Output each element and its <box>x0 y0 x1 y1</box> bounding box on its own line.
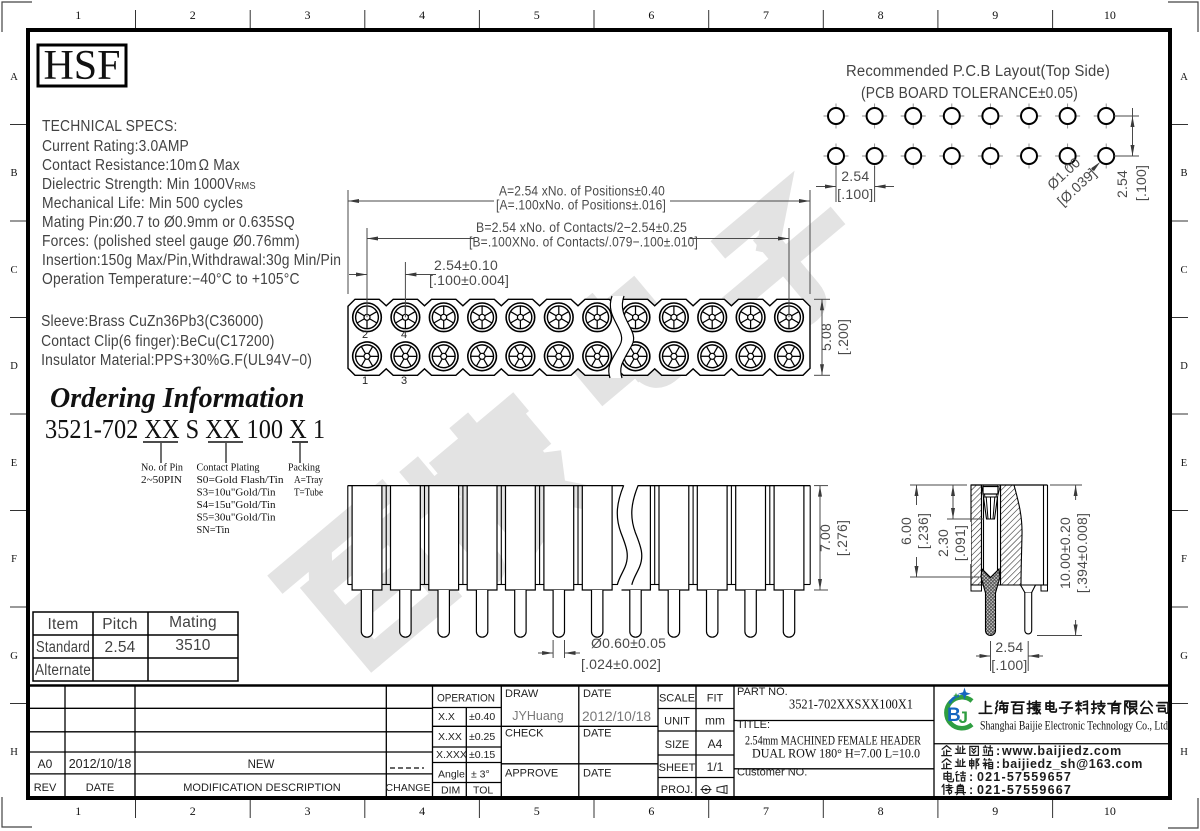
svg-text:[.100]: [.100] <box>991 657 1027 673</box>
svg-text:3521-702 XX S XX 100 X 1: 3521-702 XX S XX 100 X 1 <box>45 414 325 444</box>
svg-text:F: F <box>11 554 17 565</box>
svg-text:1: 1 <box>362 375 368 387</box>
svg-text:[.394±0.008]: [.394±0.008] <box>1074 513 1090 593</box>
svg-text::: : <box>996 744 1000 758</box>
svg-text:Insertion:150g Max/Pin,Withdra: Insertion:150g Max/Pin,Withdrawal:30g Mi… <box>42 252 341 269</box>
svg-text:Sleeve:Brass CuZn36Pb3(C36000): Sleeve:Brass CuZn36Pb3(C36000) <box>41 313 264 330</box>
svg-text:SIZE: SIZE <box>665 739 689 751</box>
svg-text:10.00±0.20: 10.00±0.20 <box>1057 517 1073 589</box>
svg-text:Contact Clip(6 finger):BeCu(C1: Contact Clip(6 finger):BeCu(C17200) <box>41 333 274 350</box>
svg-text:2.30: 2.30 <box>935 529 951 557</box>
svg-text:MODIFICATION DESCRIPTION: MODIFICATION DESCRIPTION <box>183 782 341 794</box>
svg-text:E: E <box>1181 458 1187 469</box>
svg-text:PART NO.: PART NO. <box>737 686 788 698</box>
svg-text:J: J <box>959 708 968 727</box>
svg-text:(PCB BOARD TOLERANCE±0.05): (PCB BOARD TOLERANCE±0.05) <box>861 85 1078 102</box>
svg-text:Mating Pin:Ø0.7 to Ø0.9mm or 0: Mating Pin:Ø0.7 to Ø0.9mm or 0.635SQ <box>42 214 295 231</box>
svg-text:SN=Tin: SN=Tin <box>197 524 230 536</box>
svg-text:Mating: Mating <box>169 614 217 631</box>
svg-text:APPROVE: APPROVE <box>505 768 558 780</box>
svg-text:3510: 3510 <box>175 637 210 654</box>
svg-text:5: 5 <box>534 804 540 818</box>
svg-text:D: D <box>1180 361 1188 372</box>
svg-text:5: 5 <box>534 8 540 22</box>
svg-text:Contact Resistance:10mΩ Max: Contact Resistance:10mΩ Max <box>42 157 240 174</box>
svg-text:1: 1 <box>75 804 81 818</box>
svg-text:7: 7 <box>763 8 769 22</box>
svg-text:±0.15: ±0.15 <box>469 749 495 761</box>
svg-text:SHEET: SHEET <box>659 762 696 774</box>
svg-text:2.54: 2.54 <box>841 168 869 184</box>
svg-text:[.024±0.002]: [.024±0.002] <box>581 656 661 672</box>
svg-text:[B=.100XNo. of Contacts/.079−.: [B=.100XNo. of Contacts/.079−.100±.010] <box>469 234 698 250</box>
svg-text:HSF: HSF <box>43 43 120 89</box>
svg-text:2: 2 <box>190 804 196 818</box>
svg-text:F: F <box>1181 554 1187 565</box>
svg-text:Ø0.60±0.05: Ø0.60±0.05 <box>591 635 666 651</box>
svg-text:Contact Plating: Contact Plating <box>197 462 260 474</box>
svg-text:Operation Temperature:−40°C to: Operation Temperature:−40°C to +105°C <box>42 271 300 288</box>
svg-text:DRAW: DRAW <box>505 688 539 700</box>
svg-text:2: 2 <box>190 8 196 22</box>
svg-text:REV: REV <box>34 782 57 794</box>
svg-text:Forces: (polished steel gauge: Forces: (polished steel gauge Ø0.76mm) <box>42 233 300 250</box>
svg-text:8: 8 <box>878 8 884 22</box>
svg-text:A4: A4 <box>708 737 723 751</box>
svg-text:mm: mm <box>705 714 725 728</box>
svg-text:SCALE: SCALE <box>659 693 695 705</box>
svg-text:6.00: 6.00 <box>898 517 914 545</box>
svg-text:[A=.100xNo. of Positions±.016]: [A=.100xNo. of Positions±.016] <box>496 197 666 213</box>
svg-text:3: 3 <box>305 8 311 22</box>
svg-text:X.XX: X.XX <box>438 731 462 743</box>
svg-text:Pitch: Pitch <box>102 616 137 633</box>
svg-text:2: 2 <box>362 329 368 341</box>
svg-text:OPERATION: OPERATION <box>437 693 495 705</box>
svg-text:5.08: 5.08 <box>818 323 834 351</box>
svg-text:3: 3 <box>305 804 311 818</box>
svg-text:Current Rating:3.0AMP: Current Rating:3.0AMP <box>42 138 189 155</box>
svg-text:[.236]: [.236] <box>915 513 931 549</box>
svg-text:Alternate: Alternate <box>35 662 91 679</box>
svg-text:NEW: NEW <box>248 759 275 771</box>
svg-text:No. of Pin: No. of Pin <box>141 462 183 474</box>
svg-text:7.00: 7.00 <box>817 524 833 552</box>
svg-text:A: A <box>10 72 18 83</box>
svg-text:A: A <box>1180 72 1188 83</box>
svg-text:www.baijiedz.com: www.baijiedz.com <box>1001 744 1122 758</box>
svg-text:1: 1 <box>75 8 81 22</box>
svg-text:A=Tray: A=Tray <box>294 474 323 486</box>
svg-text:1/1: 1/1 <box>707 760 724 774</box>
svg-text:[.100]: [.100] <box>837 186 873 202</box>
svg-text:3521-702XXSXX100X1: 3521-702XXSXX100X1 <box>789 698 913 713</box>
svg-text:G: G <box>1180 651 1188 662</box>
svg-text:G: G <box>10 651 18 662</box>
svg-text:FIT: FIT <box>707 693 724 705</box>
svg-text:X.X: X.X <box>438 711 455 723</box>
svg-text:H: H <box>10 747 18 758</box>
svg-text:Mechanical Life: Min 500 cycl: Mechanical Life: Min 500 cycles <box>42 195 243 212</box>
svg-text:DATE: DATE <box>86 782 115 794</box>
svg-text:TITLE:: TITLE: <box>737 719 770 731</box>
svg-text:± 3°: ± 3° <box>471 769 490 781</box>
svg-text:CHANGE: CHANGE <box>386 782 431 794</box>
svg-text:4: 4 <box>419 804 425 818</box>
svg-text:2.54: 2.54 <box>995 639 1023 655</box>
svg-text:Item: Item <box>48 616 79 633</box>
svg-text:[.276]: [.276] <box>834 520 850 556</box>
svg-text:10: 10 <box>1104 8 1116 22</box>
svg-text:9: 9 <box>992 804 998 818</box>
svg-text:Packing: Packing <box>288 462 320 474</box>
svg-text:10: 10 <box>1104 804 1116 818</box>
svg-text:2~50PIN: 2~50PIN <box>141 474 182 486</box>
svg-text:C: C <box>10 265 17 276</box>
svg-text:7: 7 <box>763 804 769 818</box>
svg-text:UNIT: UNIT <box>664 716 690 728</box>
svg-text:Insulator Material:PPS+30%G.F(: Insulator Material:PPS+30%G.F(UL94V−0) <box>41 352 312 369</box>
svg-text:S4=15u"Gold/Tin: S4=15u"Gold/Tin <box>197 499 276 511</box>
svg-text:2.54mm MACHINED FEMALE HEADER: 2.54mm MACHINED FEMALE HEADER <box>745 734 922 748</box>
svg-text:B: B <box>1180 168 1187 179</box>
svg-text:±0.40: ±0.40 <box>469 711 495 723</box>
svg-text:H: H <box>1180 747 1188 758</box>
svg-text:[.091]: [.091] <box>952 525 968 561</box>
svg-text:JYHuang: JYHuang <box>512 709 563 723</box>
svg-text:4: 4 <box>419 8 425 22</box>
svg-text:TOL: TOL <box>473 785 493 797</box>
svg-text:Ordering Information: Ordering Information <box>50 383 304 414</box>
svg-text:S3=10u"Gold/Tin: S3=10u"Gold/Tin <box>197 487 276 499</box>
svg-text:Standard: Standard <box>36 639 90 656</box>
svg-text:DATE: DATE <box>583 688 612 700</box>
svg-text:T=Tube: T=Tube <box>294 487 323 499</box>
svg-text:A0: A0 <box>38 757 53 771</box>
svg-text:S0=Gold Flash/Tin: S0=Gold Flash/Tin <box>197 474 285 486</box>
svg-text:2.54±0.10: 2.54±0.10 <box>434 257 498 273</box>
svg-text:Shanghai Baijie Electronic Tec: Shanghai Baijie Electronic Technology Co… <box>980 719 1169 733</box>
svg-text:Customer NO.: Customer NO. <box>737 767 807 779</box>
svg-text:C: C <box>1180 265 1187 276</box>
svg-text:Dielectric Strength: Min 1000: Dielectric Strength: Min 1000VRMS <box>42 176 256 193</box>
svg-text:baijiedz_sh@163.com: baijiedz_sh@163.com <box>1002 757 1143 771</box>
svg-text:[.200]: [.200] <box>835 319 851 355</box>
svg-text:±0.25: ±0.25 <box>469 731 495 743</box>
svg-text::: : <box>996 757 1000 771</box>
svg-text:9: 9 <box>992 8 998 22</box>
svg-text:[.100±0.004]: [.100±0.004] <box>429 272 509 288</box>
svg-text:4: 4 <box>401 329 407 341</box>
svg-text:CHECK: CHECK <box>505 728 544 740</box>
svg-text::: : <box>969 783 973 797</box>
svg-text:DATE: DATE <box>583 728 612 740</box>
svg-text:B: B <box>10 168 17 179</box>
svg-text:8: 8 <box>878 804 884 818</box>
svg-text:DIM: DIM <box>441 785 460 797</box>
svg-text:3: 3 <box>401 375 407 387</box>
svg-text:[.100]: [.100] <box>1133 165 1149 201</box>
svg-text:DUAL ROW 180° H=7.00 L=10.0: DUAL ROW 180° H=7.00 L=10.0 <box>752 747 920 761</box>
svg-text:TECHNICAL SPECS:: TECHNICAL SPECS: <box>42 118 178 135</box>
svg-text:2.54: 2.54 <box>1114 170 1130 198</box>
svg-text:D: D <box>10 361 18 372</box>
svg-text:021-57559667: 021-57559667 <box>977 783 1072 797</box>
svg-text:2012/10/18: 2012/10/18 <box>69 757 132 771</box>
svg-text:6: 6 <box>648 8 654 22</box>
svg-text:6: 6 <box>648 804 654 818</box>
svg-text:E: E <box>11 458 17 469</box>
svg-text:PROJ.: PROJ. <box>661 784 693 796</box>
svg-text:2.54: 2.54 <box>105 639 136 656</box>
svg-text:2012/10/18: 2012/10/18 <box>582 709 651 724</box>
svg-text:Recommended P.C.B Layout(Top S: Recommended P.C.B Layout(Top Side) <box>846 63 1110 80</box>
svg-text:X.XXX: X.XXX <box>436 749 467 761</box>
svg-text:DATE: DATE <box>583 768 612 780</box>
svg-text:S5=30u"Gold/Tin: S5=30u"Gold/Tin <box>197 512 276 524</box>
svg-text:Angle: Angle <box>438 769 465 781</box>
